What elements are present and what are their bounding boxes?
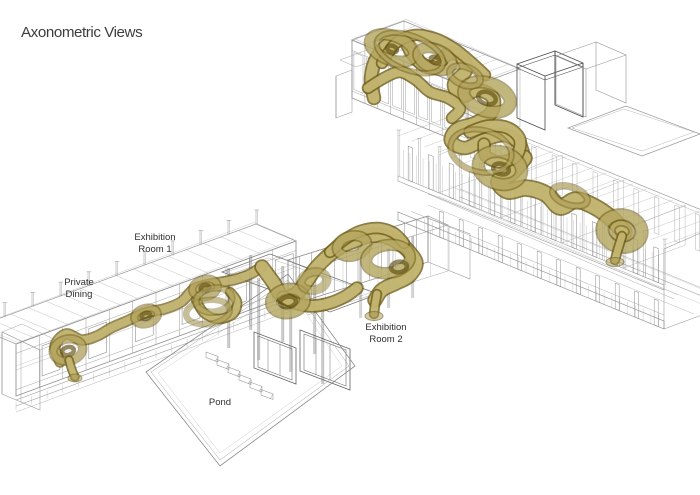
svg-text:Pond: Pond: [209, 397, 231, 408]
svg-text:Exhibition: Exhibition: [365, 322, 406, 333]
svg-text:Exhibition: Exhibition: [134, 232, 175, 243]
svg-text:Axonometric Views: Axonometric Views: [21, 24, 143, 41]
svg-text:Dining: Dining: [66, 289, 93, 300]
svg-text:Room 1: Room 1: [138, 244, 171, 255]
svg-text:Private: Private: [64, 277, 94, 288]
svg-text:Room 2: Room 2: [369, 334, 402, 345]
